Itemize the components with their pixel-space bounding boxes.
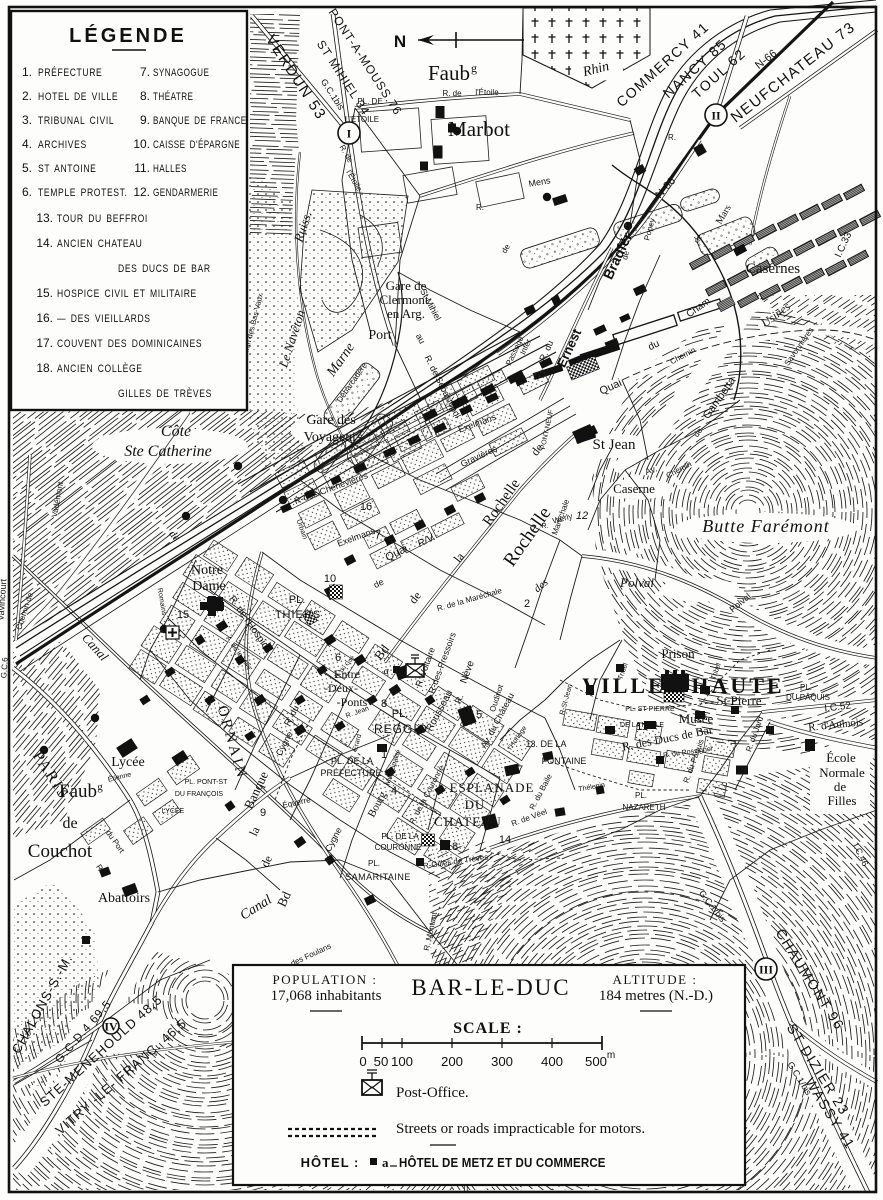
svg-text:HÔTEL DE METZ ET DU COMMERCE: HÔTEL DE METZ ET DU COMMERCE	[399, 1155, 606, 1171]
svg-text:17,068 inhabitants: 17,068 inhabitants	[271, 988, 382, 1004]
svg-text:8: 8	[381, 698, 387, 710]
svg-text:PL. ST-PIERRE: PL. ST-PIERRE	[625, 706, 675, 713]
svg-text:BANQUE DE FRANCE: BANQUE DE FRANCE	[153, 115, 247, 128]
svg-text:BAR-LE-DUC: BAR-LE-DUC	[411, 975, 570, 1000]
svg-text:8.: 8.	[140, 89, 150, 103]
svg-text:— DES VIEILLARDS: — DES VIEILLARDS	[57, 313, 151, 325]
svg-text:PL. DE: PL. DE	[357, 97, 382, 106]
svg-text:GENDARMERIE: GENDARMERIE	[153, 187, 218, 200]
svg-text:300: 300	[491, 1054, 513, 1069]
svg-text:6.: 6.	[22, 185, 32, 199]
svg-text:9.: 9.	[140, 113, 150, 127]
svg-text:SAMARITAINE: SAMARITAINE	[345, 872, 411, 882]
svg-text:DU PÂQUIS: DU PÂQUIS	[786, 693, 830, 702]
svg-text:2: 2	[524, 598, 530, 610]
svg-text:Gare des: Gare des	[306, 413, 355, 428]
svg-text:Caserne: Caserne	[613, 481, 655, 496]
svg-text:Streets or roads impracticable: Streets or roads impracticable for motor…	[396, 1121, 645, 1137]
svg-text:10: 10	[324, 573, 336, 585]
svg-text:0: 0	[359, 1054, 366, 1069]
svg-text:II: II	[711, 109, 721, 123]
svg-text:R.: R.	[542, 523, 549, 530]
svg-text:-Deux-: -Deux-	[324, 681, 358, 695]
svg-text:l'Étoile: l'Étoile	[475, 88, 499, 97]
svg-text:PL. PONT-ST: PL. PONT-ST	[185, 779, 229, 786]
svg-text:16: 16	[360, 501, 372, 513]
svg-text:100: 100	[391, 1054, 413, 1069]
svg-text:PL.: PL.	[800, 683, 812, 692]
svg-text:DE LA HALLE: DE LA HALLE	[620, 722, 664, 729]
svg-text:17.: 17.	[36, 336, 53, 350]
svg-text:ARCHIVES: ARCHIVES	[38, 139, 87, 151]
svg-text:4: 4	[391, 785, 397, 797]
svg-text:ALTITUDE :: ALTITUDE :	[613, 972, 698, 987]
svg-text:Dame: Dame	[192, 579, 225, 594]
svg-text:REGGIO: REGGIO	[374, 722, 428, 736]
svg-text:Lycée: Lycée	[111, 755, 144, 770]
svg-text:Casernes: Casernes	[746, 261, 800, 277]
svg-text:Port: Port	[368, 328, 391, 343]
svg-text:13.: 13.	[36, 211, 53, 225]
svg-text:184 metres (N.-D.): 184 metres (N.-D.)	[599, 988, 713, 1004]
svg-text:ANCIEN CHATEAU: ANCIEN CHATEAU	[57, 238, 142, 250]
svg-text:18: 18	[446, 841, 458, 853]
svg-text:12: 12	[576, 510, 588, 522]
svg-text:HÔTEL :: HÔTEL :	[301, 1155, 360, 1170]
svg-text:200: 200	[441, 1054, 463, 1069]
svg-text:4.: 4.	[22, 137, 32, 151]
svg-text:14: 14	[499, 834, 511, 846]
svg-text:SYNAGOGUE: SYNAGOGUE	[153, 67, 209, 80]
svg-text:11.: 11.	[134, 161, 150, 175]
svg-text:DU FRANÇOIS: DU FRANÇOIS	[175, 791, 224, 798]
svg-text:TOUR DU BEFFROI: TOUR DU BEFFROI	[57, 213, 148, 225]
svg-text:Butte Farémont: Butte Farémont	[702, 516, 829, 536]
svg-text:3.: 3.	[22, 113, 32, 127]
svg-text:5: 5	[476, 709, 482, 721]
svg-text:Marbot: Marbot	[448, 117, 510, 141]
svg-text:5.: 5.	[22, 161, 32, 175]
svg-text:FONTAINE: FONTAINE	[542, 756, 587, 766]
svg-text:COUVENT DES DOMINICAINES: COUVENT DES DOMINICAINES	[57, 338, 202, 350]
svg-text:g: g	[471, 61, 477, 75]
svg-text:L'ÉTOILE: L'ÉTOILE	[345, 115, 379, 124]
svg-text:de: de	[62, 815, 77, 832]
svg-text:Normale: Normale	[819, 765, 865, 780]
svg-text:POPULATION :: POPULATION :	[272, 972, 377, 987]
svg-text:HOSPICE CIVIL ET MILITAIRE: HOSPICE CIVIL ET MILITAIRE	[57, 288, 197, 300]
svg-text:LYCÉE: LYCÉE	[162, 806, 185, 815]
svg-text:R.: R.	[668, 133, 676, 142]
svg-text:TEMPLE PROTEST.: TEMPLE PROTEST.	[38, 187, 128, 199]
svg-text:GILLES DE TRÈVES: GILLES DE TRÈVES	[118, 388, 212, 400]
svg-text:15: 15	[177, 609, 189, 621]
svg-text:g: g	[97, 781, 103, 793]
svg-text:Couchot: Couchot	[28, 841, 93, 862]
svg-text:a: a	[382, 1155, 389, 1170]
svg-text:Faub: Faub	[428, 61, 470, 85]
svg-text:ESPLANADE: ESPLANADE	[450, 780, 535, 795]
svg-text:LÉGENDE: LÉGENDE	[69, 24, 187, 47]
svg-text:500: 500	[585, 1054, 607, 1069]
svg-text:St Jean: St Jean	[593, 437, 636, 453]
svg-text:Filles: Filles	[828, 793, 857, 808]
svg-text:a: a	[384, 665, 390, 677]
svg-text:I: I	[347, 127, 352, 141]
svg-text:PL.: PL.	[635, 791, 647, 800]
svg-text:7: 7	[375, 529, 381, 541]
svg-text:St Pierre: St Pierre	[716, 693, 761, 708]
svg-text:Ste Catherine: Ste Catherine	[124, 443, 212, 460]
svg-text:1.: 1.	[22, 65, 32, 79]
svg-text:PL.: PL.	[392, 708, 409, 720]
svg-text:COURONNE: COURONNE	[375, 843, 422, 852]
svg-text:18.: 18.	[36, 361, 53, 375]
svg-text:ANCIEN COLLÈGE: ANCIEN COLLÈGE	[57, 363, 143, 375]
svg-text:2.: 2.	[22, 89, 32, 103]
svg-text:N: N	[394, 32, 406, 51]
svg-text:THIERS: THIERS	[275, 609, 321, 621]
svg-text:R. de: R. de	[442, 89, 462, 98]
svg-text:THÉATRE: THÉATRE	[153, 91, 193, 104]
svg-text:PRÉFECTURE: PRÉFECTURE	[320, 768, 381, 778]
svg-text:CAISSE D'ÉPARGNE: CAISSE D'ÉPARGNE	[153, 139, 240, 152]
svg-text:TRIBUNAL CIVIL: TRIBUNAL CIVIL	[38, 115, 114, 127]
svg-text:Côte: Côte	[161, 423, 191, 440]
svg-text:de: de	[834, 779, 847, 794]
svg-text:Voyageurs: Voyageurs	[304, 430, 363, 445]
svg-text:12.: 12.	[133, 185, 150, 199]
svg-text:G.C.6: G.C.6	[0, 657, 10, 679]
svg-text:CHATEAU: CHATEAU	[434, 814, 502, 829]
svg-text:6: 6	[335, 652, 341, 664]
svg-text:15.: 15.	[36, 286, 53, 300]
svg-text:Notre: Notre	[191, 563, 223, 578]
svg-text:DU: DU	[465, 797, 486, 812]
svg-text:m: m	[607, 1050, 615, 1061]
svg-text:École: École	[826, 750, 856, 765]
svg-text:1: 1	[381, 749, 387, 761]
svg-text:Prison: Prison	[661, 646, 695, 661]
svg-text:R.: R.	[476, 203, 484, 212]
svg-text:17: 17	[511, 764, 523, 776]
svg-text:Musée: Musée	[679, 711, 714, 726]
svg-text:PL. DE LA: PL. DE LA	[381, 832, 419, 841]
svg-text:en Arg.: en Arg.	[387, 306, 425, 321]
svg-text:50: 50	[374, 1054, 389, 1069]
svg-text:13. DE LA: 13. DE LA	[525, 739, 566, 749]
svg-text:DES DUCS DE BAR: DES DUCS DE BAR	[118, 263, 211, 275]
svg-text:PRÉFECTURE: PRÉFECTURE	[38, 67, 102, 79]
svg-text:SCALE :: SCALE :	[453, 1020, 523, 1037]
svg-text:PL.: PL.	[368, 859, 380, 868]
svg-text:9: 9	[260, 807, 266, 819]
svg-text:Polval: Polval	[619, 575, 654, 590]
svg-text:PL.: PL.	[289, 594, 306, 606]
svg-text:7.: 7.	[140, 65, 150, 79]
svg-text:10.: 10.	[133, 137, 150, 151]
svg-text:Abattoirs: Abattoirs	[98, 891, 150, 906]
svg-text:14.: 14.	[36, 236, 53, 250]
svg-text:HALLES: HALLES	[153, 163, 187, 176]
svg-text:NAZARETH: NAZARETH	[622, 803, 665, 812]
svg-text:16.: 16.	[36, 311, 53, 325]
svg-text:PL. DE LA: PL. DE LA	[331, 756, 373, 766]
svg-text:III: III	[759, 963, 773, 977]
svg-text:ST ANTOINE: ST ANTOINE	[38, 163, 96, 175]
svg-text:400: 400	[541, 1054, 563, 1069]
svg-text:Faub: Faub	[59, 781, 97, 802]
svg-text:Post-Office.: Post-Office.	[396, 1085, 469, 1101]
svg-text:HOTEL DE VILLE: HOTEL DE VILLE	[38, 91, 118, 103]
